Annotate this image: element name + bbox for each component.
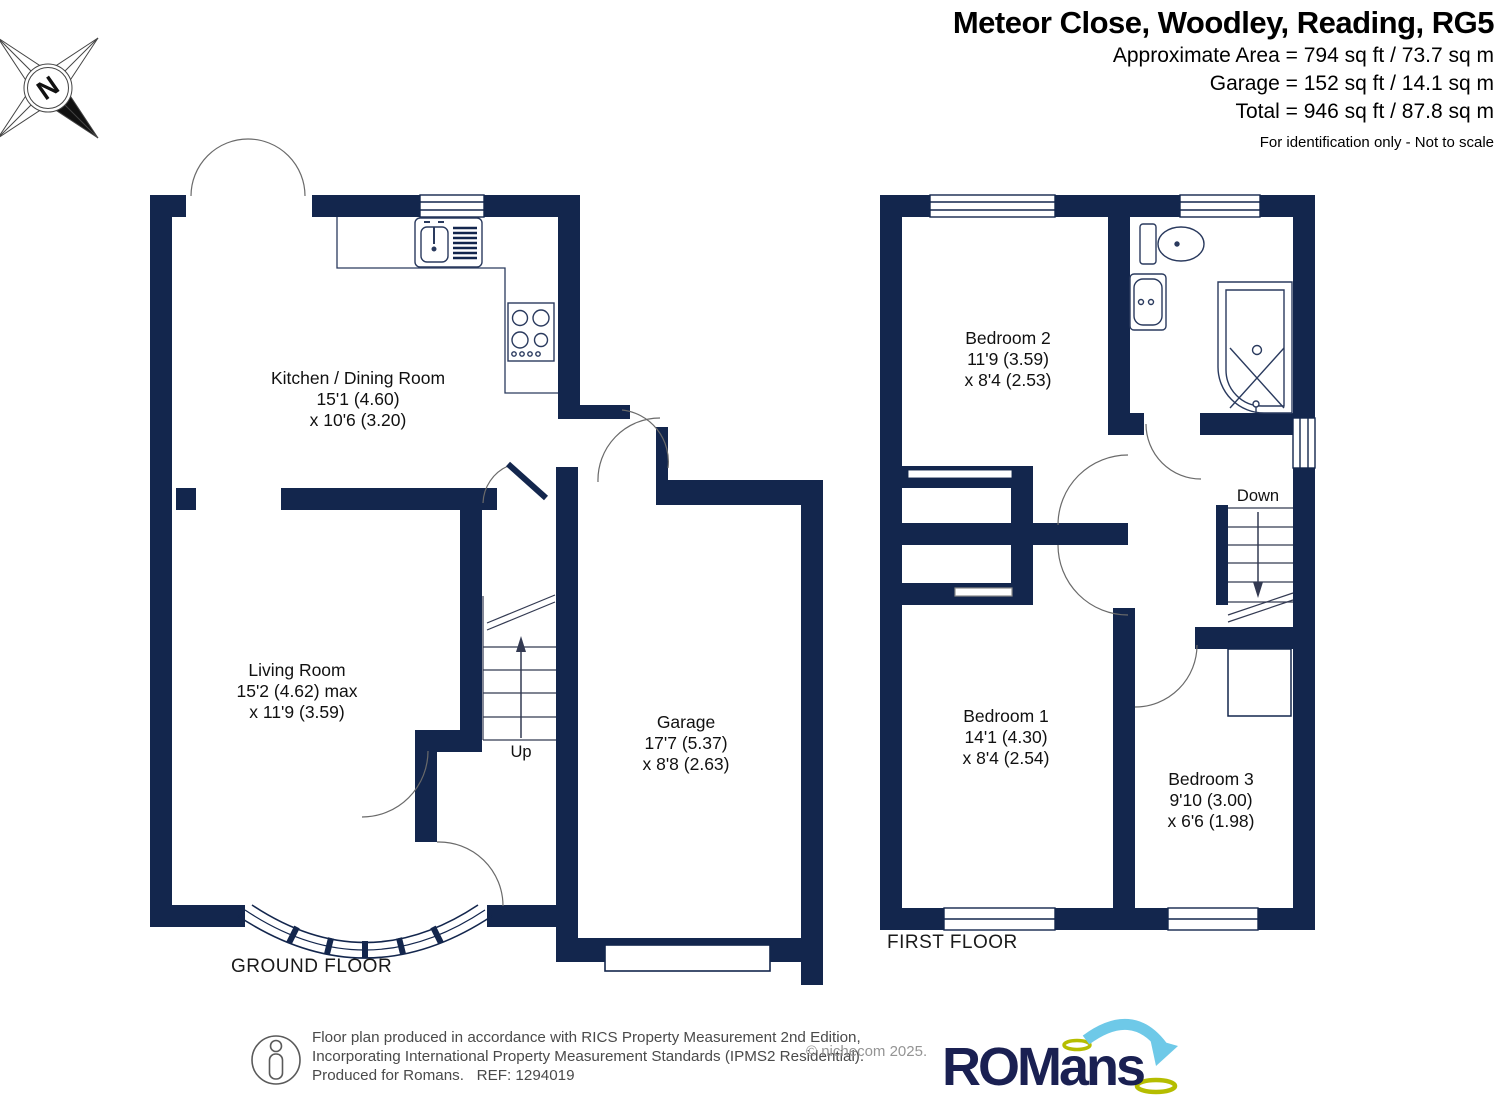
basin <box>1130 274 1166 330</box>
kitchen-hob <box>508 303 554 361</box>
rics-line-2: Incorporating International Property Mea… <box>312 1047 864 1066</box>
disclaimer: For identification only - Not to scale <box>953 132 1494 154</box>
first-stairs <box>1228 508 1293 622</box>
kitchen-sink <box>415 218 482 267</box>
rics-disclaimer-block: Floor plan produced in accordance with R… <box>312 1028 864 1085</box>
living-room-label: Living Room 15'2 (4.62) max x 11'9 (3.59… <box>236 660 357 723</box>
rics-person-icon <box>252 1036 300 1084</box>
kitchen-label: Kitchen / Dining Room 15'1 (4.60) x 10'6… <box>271 368 445 431</box>
approximate-area: Approximate Area = 794 sq ft / 73.7 sq m <box>953 42 1494 70</box>
rics-line-1: Floor plan produced in accordance with R… <box>312 1028 864 1047</box>
nichecom-copyright: © nichecom 2025. <box>806 1043 927 1060</box>
stairs-bulkhead <box>1228 649 1291 716</box>
stairs-down-label: Down <box>1237 487 1279 506</box>
stairs-up-label: Up <box>510 743 531 762</box>
rics-line-3: Produced for Romans. REF: 1294019 <box>312 1066 864 1085</box>
front-door-leaf <box>508 464 546 498</box>
garage-area: Garage = 152 sq ft / 14.1 sq m <box>953 70 1494 98</box>
bedroom3-label: Bedroom 3 9'10 (3.00) x 6'6 (1.98) <box>1168 769 1255 832</box>
total-area: Total = 946 sq ft / 87.8 sq m <box>953 98 1494 126</box>
garage-door <box>605 945 770 971</box>
garage-label: Garage 17'7 (5.37) x 8'8 (2.63) <box>643 712 730 775</box>
page-title: Meteor Close, Woodley, Reading, RG5 <box>953 4 1494 42</box>
bedroom2-label: Bedroom 2 11'9 (3.59) x 8'4 (2.53) <box>965 328 1052 391</box>
ground-floor-caption: GROUND FLOOR <box>231 956 392 978</box>
floorplan-drawing: N <box>0 0 1504 1096</box>
bath <box>1218 282 1292 413</box>
ground-floor-walls <box>150 195 823 985</box>
compass-icon: N <box>0 38 98 138</box>
header-block: Meteor Close, Woodley, Reading, RG5 Appr… <box>953 4 1494 154</box>
first-floor-caption: FIRST FLOOR <box>887 932 1018 954</box>
floorplan-page: N <box>0 0 1504 1096</box>
toilet <box>1140 224 1204 264</box>
ground-stairs <box>483 595 556 740</box>
bedroom1-label: Bedroom 1 14'1 (4.30) x 8'4 (2.54) <box>963 706 1050 769</box>
romans-logo-text: ROMans <box>942 1036 1143 1096</box>
ground-floor-windows <box>420 195 484 217</box>
bay-window <box>238 905 492 958</box>
